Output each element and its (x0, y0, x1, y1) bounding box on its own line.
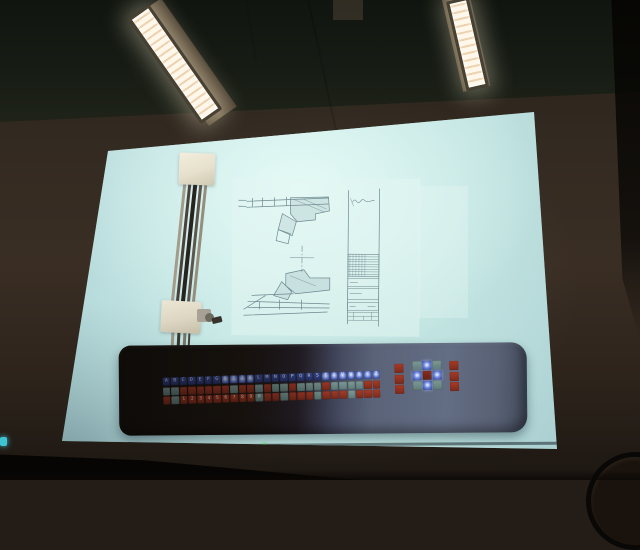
status-led (0, 437, 7, 446)
panel-shadow-overlay (119, 342, 528, 436)
machine-lower-carriage (160, 300, 202, 334)
drawing-graphics (231, 177, 420, 337)
drawing-section-top (238, 196, 329, 244)
machine-top-carriage (178, 152, 215, 185)
drawing-section-bottom (243, 269, 329, 316)
ceiling-beam (333, 0, 363, 20)
machine-rails (170, 181, 209, 307)
keyboard-panel: ABCDEFGHIJKLMNOPQRSTUVWXYZ 1234567890 (119, 342, 528, 436)
machine-probe-tip (211, 316, 222, 324)
bottom-shadow (0, 470, 640, 480)
drawing-sheet (231, 177, 420, 337)
drawing-title-block (347, 188, 379, 326)
drawing-sheet-edge (418, 186, 468, 318)
